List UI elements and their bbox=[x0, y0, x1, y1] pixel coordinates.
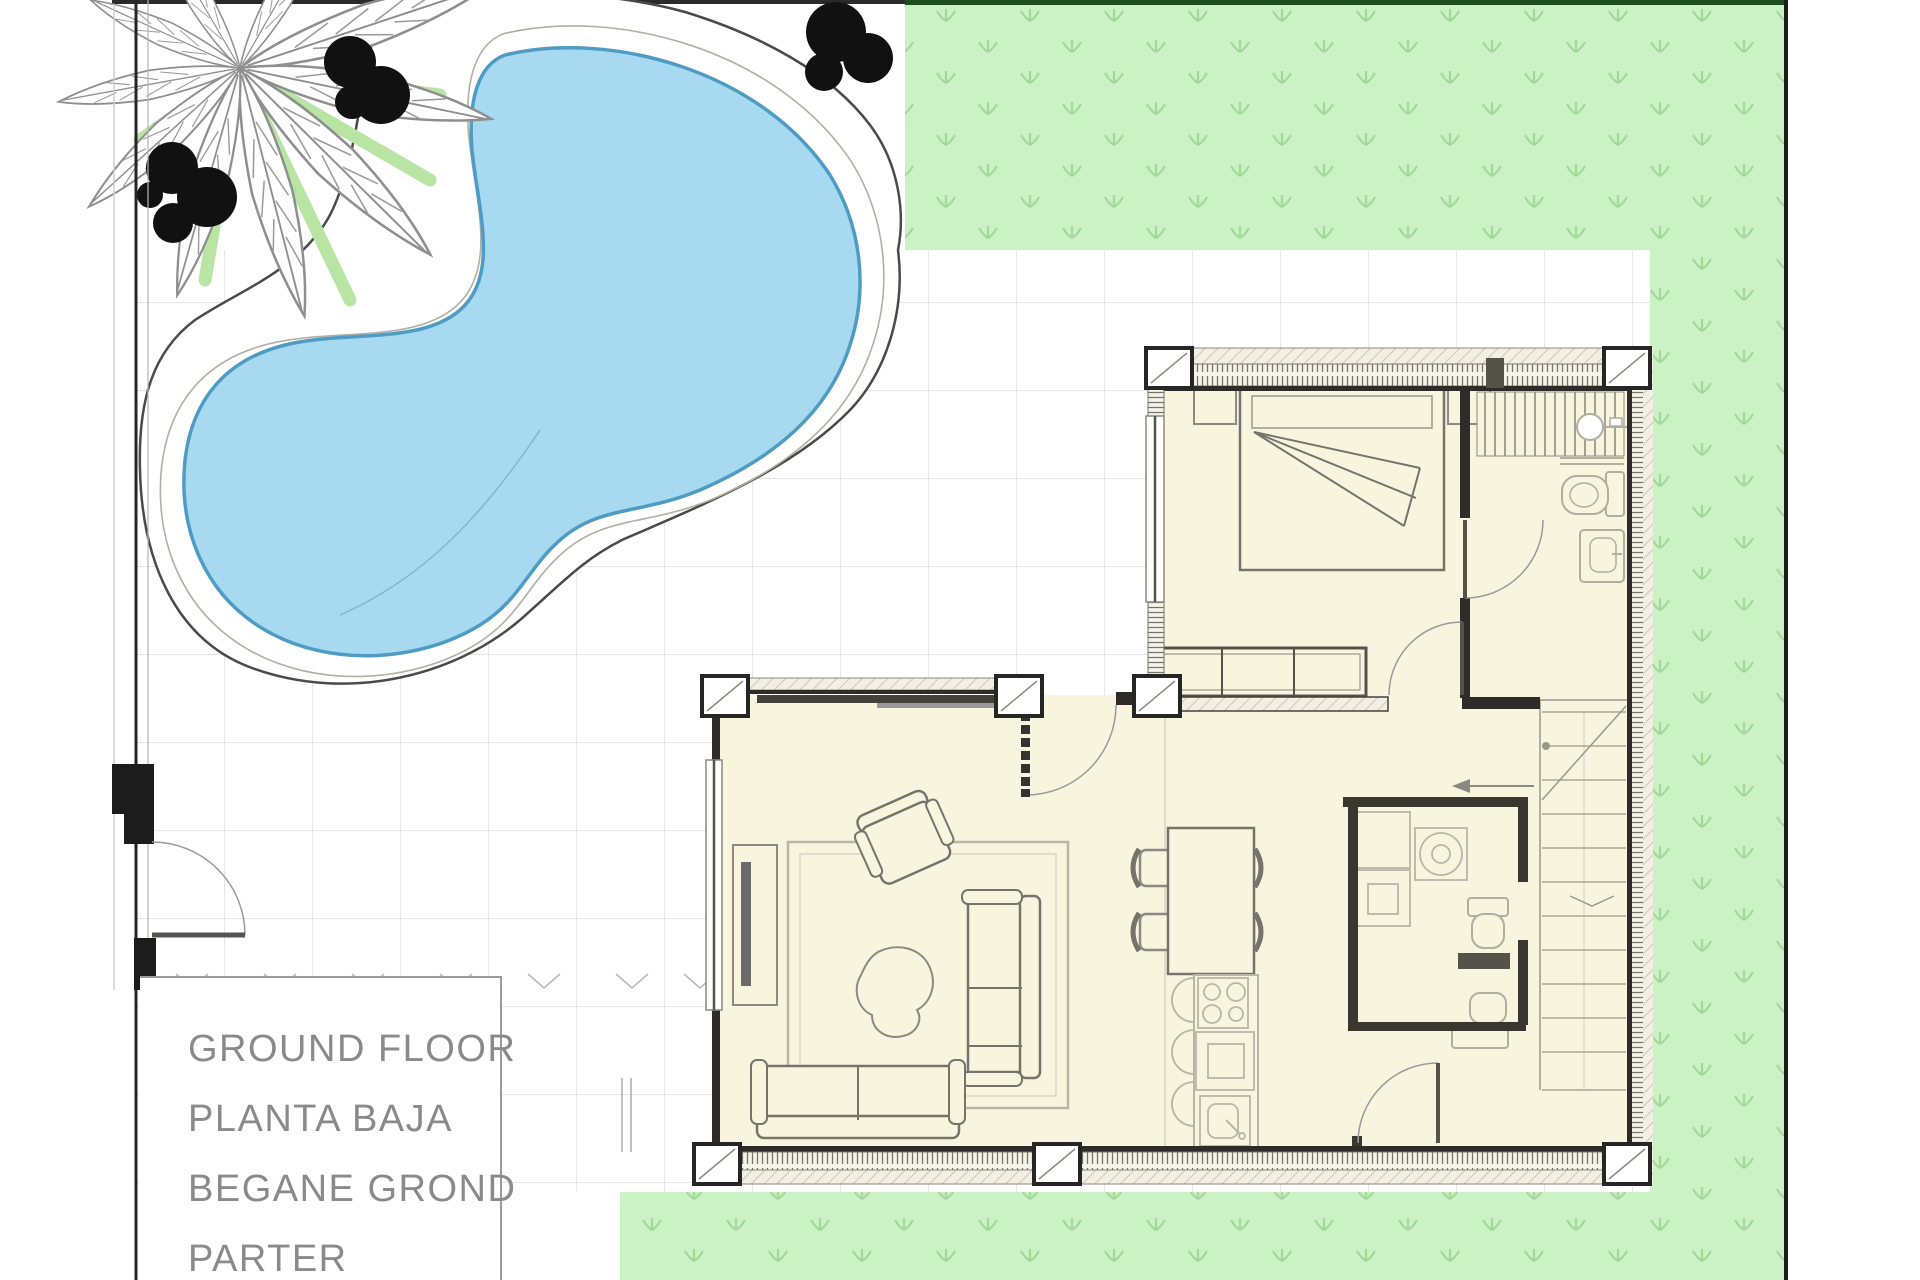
utility-cabinet bbox=[1356, 812, 1410, 868]
tv-console bbox=[733, 845, 777, 1005]
plan-title-en: GROUND FLOOR bbox=[188, 1030, 500, 1069]
lawn-east bbox=[1650, 250, 1786, 1280]
lawn-south bbox=[620, 1192, 1786, 1280]
window-mullion bbox=[1486, 358, 1504, 388]
double-bed bbox=[1240, 388, 1444, 570]
title-block-panel: GROUND FLOOR PLANTA BAJA BEGANE GROND PA… bbox=[140, 976, 502, 1280]
bedroom-north-window bbox=[1150, 364, 1650, 386]
gate-post-mid bbox=[124, 812, 154, 844]
lawn-north-border bbox=[905, 0, 1786, 5]
floor-plan-page: GROUND FLOOR PLANTA BAJA BEGANE GROND PA… bbox=[0, 0, 1920, 1280]
nightstand-left bbox=[1194, 390, 1236, 424]
wardrobe-closet bbox=[1150, 648, 1366, 696]
plot-boundary-east bbox=[1784, 0, 1788, 1280]
shrub-cluster-poolside bbox=[805, 2, 893, 91]
toilet bbox=[1562, 472, 1624, 516]
dining-table bbox=[1168, 828, 1254, 974]
sliding-door-leaf-1 bbox=[757, 695, 995, 703]
east-wall bbox=[1627, 348, 1653, 1184]
oven bbox=[1196, 1032, 1254, 1090]
south-glazing bbox=[695, 1152, 1650, 1170]
living-south-wall bbox=[695, 1146, 1650, 1184]
gate-post-upper bbox=[112, 764, 154, 814]
bedroom-west-wall bbox=[1146, 388, 1164, 678]
sofa-south bbox=[751, 1060, 965, 1138]
plan-title-es: PLANTA BAJA bbox=[188, 1100, 500, 1139]
bedroom-north-wall bbox=[1150, 348, 1650, 391]
utility-toilet bbox=[1468, 898, 1508, 948]
cooktop bbox=[1198, 978, 1248, 1028]
stair-newel bbox=[1542, 742, 1550, 750]
lawn-north bbox=[905, 0, 1786, 250]
kitchen-sink bbox=[1200, 1096, 1250, 1146]
wc-vanity bbox=[1458, 953, 1510, 969]
bathroom-sink bbox=[1580, 530, 1624, 582]
sofa-east bbox=[962, 890, 1040, 1086]
tv-screen bbox=[741, 862, 751, 986]
plan-title-nl: BEGANE GROND bbox=[188, 1170, 500, 1209]
plan-title-pl: PARTER bbox=[188, 1240, 500, 1279]
